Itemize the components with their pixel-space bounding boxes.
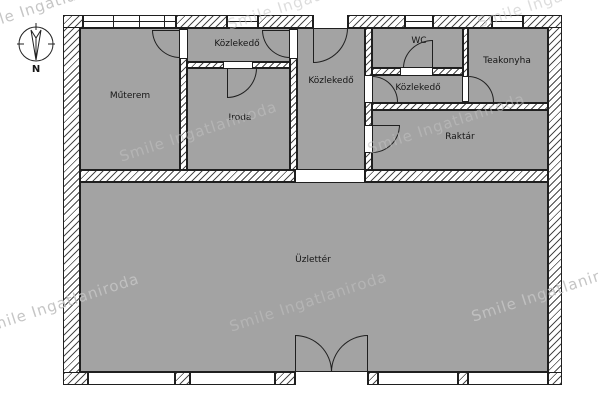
window-top-4 — [492, 15, 523, 28]
room-label-wc: WC — [411, 36, 426, 46]
wall-uzletter-top-left — [80, 170, 295, 182]
doorway-raktar — [365, 125, 372, 153]
window-divider — [139, 16, 140, 27]
window-top-1 — [83, 15, 176, 28]
wall-top-segment — [63, 15, 83, 28]
wall-bottom-pier — [368, 372, 378, 385]
wall-top-segment — [348, 15, 405, 28]
wall-bottom-pier — [175, 372, 190, 385]
window-bottom-3 — [378, 372, 458, 385]
wall-raktar-top — [372, 103, 548, 110]
room-label-kozlekedo-top-left: Közlekedő — [214, 39, 259, 49]
room-label-iroda: Iroda — [229, 113, 252, 123]
opening-corridor-uzletter — [295, 170, 365, 182]
wall-top-segment — [176, 15, 227, 28]
room-label-kozlekedo-right: Közlekedő — [395, 83, 440, 93]
entrance-top-opening — [313, 15, 348, 28]
window-bottom-1 — [88, 372, 175, 385]
wall-bottom-segment — [548, 372, 562, 385]
entrance-bottom-opening — [295, 372, 368, 385]
wall-bottom-segment — [63, 372, 88, 385]
doorway-muterem — [180, 29, 187, 59]
wall-right — [548, 15, 562, 385]
wall-bottom-pier — [275, 372, 295, 385]
wall-left — [63, 15, 80, 385]
window-bottom-2 — [190, 372, 275, 385]
wall-top-segment — [523, 15, 562, 28]
compass: N — [14, 20, 58, 74]
window-top-2 — [227, 15, 258, 28]
room-label-raktar: Raktár — [445, 132, 475, 142]
window-divider — [113, 16, 114, 27]
compass-north-label: N — [32, 64, 40, 74]
wall-top-segment — [258, 15, 313, 28]
room-label-muterem: Műterem — [110, 91, 150, 101]
wall-uzletter-top-right — [365, 170, 548, 182]
room-label-teakonyha: Teakonyha — [483, 56, 531, 66]
window-bottom-4 — [468, 372, 548, 385]
doorway-kozlekedo-corridor — [290, 29, 297, 59]
window-top-3 — [405, 15, 433, 28]
wall-top-segment — [433, 15, 492, 28]
room-label-kozlekedo-middle: Közlekedő — [308, 76, 353, 86]
room-label-uzletter: Üzlettér — [295, 255, 331, 265]
floor-plan: Műterem Közlekedő Iroda Közlekedő WC Köz… — [0, 0, 600, 405]
doorway-kozlekedo-right — [365, 75, 372, 103]
window-divider — [164, 16, 165, 27]
doorway-wc — [400, 68, 433, 75]
wall-bottom-pier — [458, 372, 468, 385]
